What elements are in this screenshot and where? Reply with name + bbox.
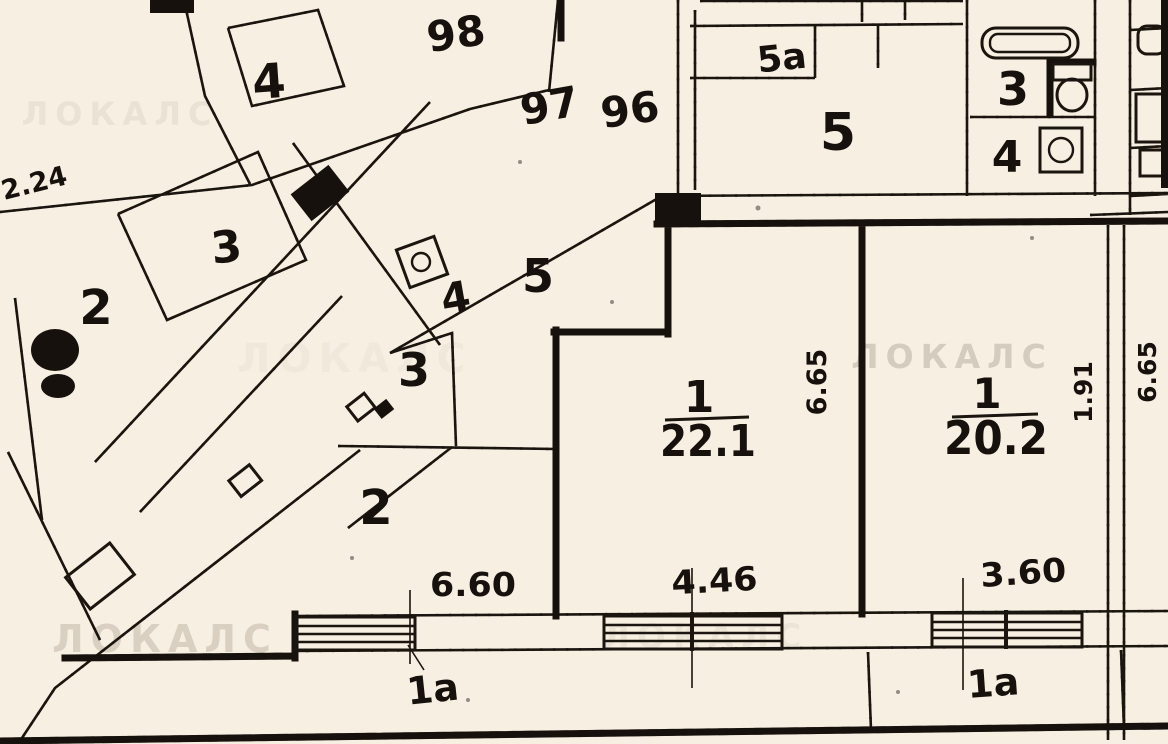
floor-plan-scan: ЛОКАЛС ЛОКАЛС ЛОКАЛС ЛОКАЛС ЛОКАЛС (0, 0, 1168, 744)
watermark-text: ЛОКАЛС (22, 95, 219, 133)
watermark-text: ЛОКАЛС (851, 337, 1053, 376)
balcony-1a-right-label: 1а (966, 659, 1021, 707)
speck (466, 698, 470, 702)
site-room-5-mid-label: 5 (522, 249, 554, 303)
site-room-3-lower-label: 3 (398, 343, 430, 397)
dim-height-right: 1.91 (1069, 361, 1098, 423)
apartment-97-label: 97 (516, 77, 582, 135)
speck (756, 206, 761, 211)
site-building-4-label: 4 (250, 53, 287, 111)
room-a-area: 22.1 (660, 416, 756, 467)
dim-height-far-right: 6.65 (1133, 341, 1162, 403)
balcony-1a-left-label: 1а (404, 664, 460, 713)
site-room-3-upper-label: 3 (209, 221, 245, 275)
room-5a-label: 5а (755, 36, 808, 82)
apartment-98-label: 98 (424, 5, 489, 62)
scan-artifact (1161, 0, 1168, 188)
wall-junction-ink (655, 193, 701, 227)
room-5-label: 5 (820, 103, 856, 163)
ink-blob (31, 329, 79, 371)
room-2-large-label: 2 (359, 480, 392, 536)
site-room-2-small-label: 2 (79, 280, 112, 336)
floor-plan-canvas: ЛОКАЛС ЛОКАЛС ЛОКАЛС ЛОКАЛС ЛОКАЛС (0, 0, 1168, 744)
room-3-label: 3 (997, 62, 1029, 116)
scan-artifact (150, 0, 194, 13)
speck (518, 160, 522, 164)
speck (896, 690, 900, 694)
speck (1030, 236, 1034, 240)
room-b-area: 20.2 (944, 411, 1048, 465)
dim-width-right: 3.60 (979, 550, 1068, 595)
speck (610, 300, 614, 304)
watermark-text: ЛОКАЛС (602, 617, 808, 657)
speck (350, 556, 354, 560)
dim-width-center: 4.46 (670, 559, 758, 602)
dim-width-left: 6.60 (430, 565, 516, 604)
apartment-96-label: 96 (598, 81, 663, 138)
ink-blob (41, 374, 75, 398)
room-4-label: 4 (992, 132, 1023, 183)
dim-height-center: 6.65 (802, 349, 833, 416)
